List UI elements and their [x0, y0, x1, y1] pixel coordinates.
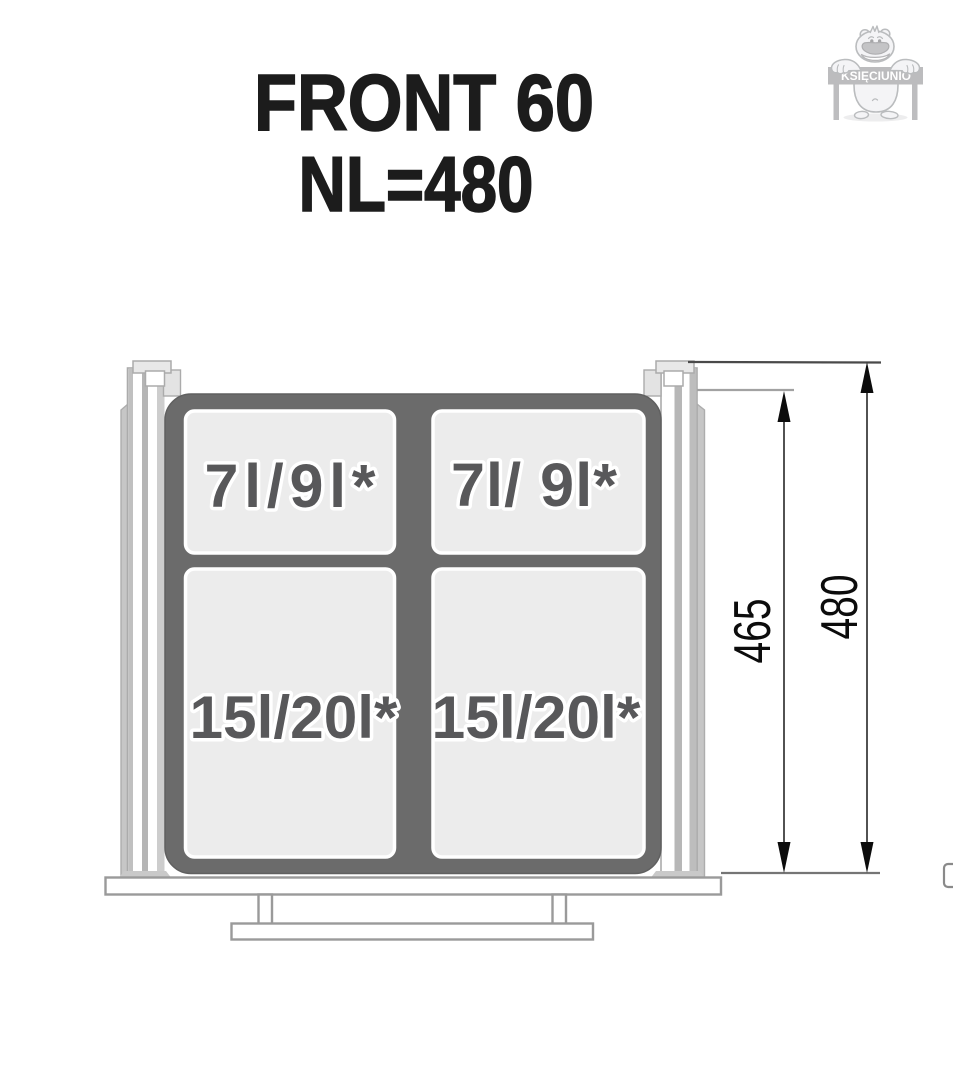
svg-text:KSIĘCIUNIO: KSIĘCIUNIO [841, 71, 911, 83]
svg-text:15l/20l*: 15l/20l* [432, 684, 642, 751]
svg-text:FRONT 60: FRONT 60 [254, 58, 594, 147]
svg-text:15l/20l*: 15l/20l* [190, 684, 399, 751]
svg-text:480: 480 [811, 575, 869, 640]
svg-text:NL=480: NL=480 [299, 140, 534, 228]
svg-text:465: 465 [724, 599, 782, 664]
svg-text:7l/ 9l*: 7l/ 9l* [451, 451, 617, 519]
